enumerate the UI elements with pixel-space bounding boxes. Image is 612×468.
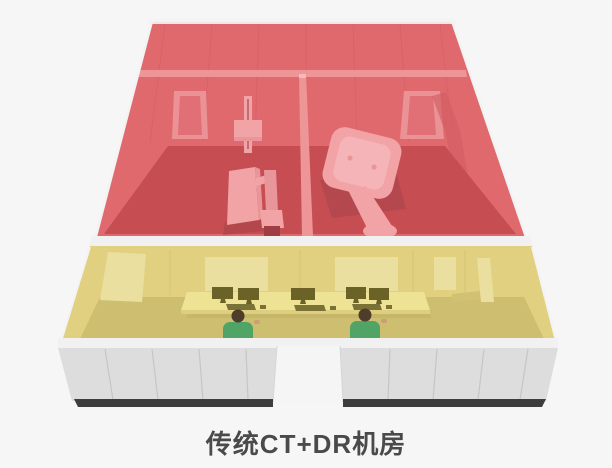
keyboard-1 bbox=[226, 304, 256, 310]
keyboard-2 bbox=[294, 305, 326, 311]
control-zone-yellow bbox=[60, 246, 557, 346]
monitor-2-stand bbox=[246, 300, 252, 304]
operator-right-head bbox=[359, 309, 372, 322]
wall-base-right bbox=[343, 399, 546, 407]
mouse-1 bbox=[260, 305, 266, 309]
room-divider-wall-top bbox=[299, 74, 306, 78]
monitor-3-stand bbox=[300, 300, 306, 304]
page-title: 传统CT+DR机房 bbox=[0, 424, 612, 461]
monitor-4-stand bbox=[353, 299, 359, 303]
monitor-4 bbox=[346, 287, 366, 299]
operator-left-head bbox=[232, 310, 245, 323]
room-illustration bbox=[0, 0, 612, 468]
red-back-wall-top-edge bbox=[147, 19, 457, 24]
monitor-2 bbox=[238, 288, 259, 300]
observation-window-left bbox=[205, 257, 268, 291]
wall-base-left bbox=[74, 399, 273, 407]
front-exterior-wall bbox=[58, 338, 558, 407]
dr-detector-box-shade bbox=[234, 137, 262, 141]
ct-gantry-detail-1 bbox=[347, 155, 352, 160]
ct-gantry-detail-2 bbox=[371, 164, 376, 169]
operator-right-hand bbox=[381, 319, 387, 323]
observation-window-right bbox=[335, 257, 398, 291]
dr-tube-column-foot bbox=[260, 210, 284, 228]
monitor-1-stand bbox=[220, 299, 226, 303]
entrance-opening bbox=[273, 346, 343, 402]
dr-tube-column bbox=[264, 170, 278, 212]
dr-room-door-panel bbox=[178, 96, 202, 135]
observation-window-far-right bbox=[434, 257, 456, 290]
monitor-1 bbox=[212, 287, 233, 299]
monitor-5-stand bbox=[376, 300, 382, 304]
left-wall-door bbox=[100, 252, 146, 302]
zone-divider-wall-top bbox=[89, 236, 533, 246]
operator-left-hand bbox=[254, 320, 260, 324]
scene-3d-room-render: 传统CT+DR机房 bbox=[0, 0, 612, 468]
mouse-2 bbox=[330, 306, 336, 310]
monitor-3 bbox=[291, 288, 315, 300]
mouse-3 bbox=[386, 305, 392, 309]
ct-room-door-panel bbox=[407, 96, 436, 135]
scan-zone-red bbox=[95, 19, 527, 241]
monitor-5 bbox=[369, 288, 389, 300]
dr-patient-table bbox=[227, 167, 259, 225]
